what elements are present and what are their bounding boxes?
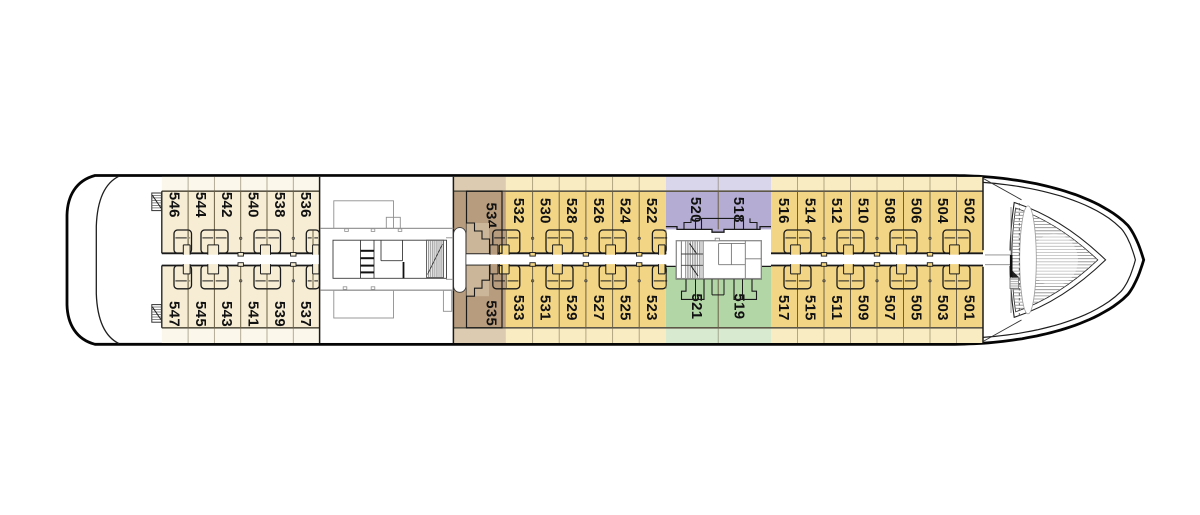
svg-text:501: 501: [960, 295, 977, 321]
svg-text:505: 505: [907, 295, 924, 321]
svg-text:519: 519: [731, 293, 748, 319]
svg-text:546: 546: [166, 192, 183, 218]
svg-text:527: 527: [590, 295, 607, 321]
svg-text:529: 529: [563, 295, 580, 321]
svg-text:511: 511: [828, 295, 845, 320]
svg-text:538: 538: [271, 192, 288, 218]
svg-text:535: 535: [482, 300, 499, 326]
svg-text:516: 516: [775, 198, 792, 224]
svg-text:502: 502: [960, 198, 977, 224]
svg-text:532: 532: [510, 198, 527, 224]
svg-text:524: 524: [617, 198, 634, 224]
svg-text:526: 526: [590, 198, 607, 224]
svg-text:508: 508: [881, 198, 898, 224]
svg-text:541: 541: [245, 301, 262, 327]
svg-text:514: 514: [801, 198, 818, 224]
svg-text:525: 525: [617, 295, 634, 321]
svg-text:530: 530: [537, 198, 554, 224]
svg-text:512: 512: [828, 198, 845, 224]
svg-text:521: 521: [688, 293, 705, 319]
svg-text:545: 545: [192, 301, 209, 327]
svg-text:536: 536: [297, 192, 314, 218]
svg-text:539: 539: [271, 301, 288, 327]
svg-text:537: 537: [297, 301, 314, 327]
svg-text:540: 540: [245, 192, 262, 218]
svg-text:504: 504: [934, 198, 951, 224]
svg-text:528: 528: [563, 198, 580, 224]
svg-text:533: 533: [510, 295, 527, 321]
svg-text:522: 522: [643, 198, 660, 224]
svg-text:517: 517: [775, 295, 792, 321]
svg-text:544: 544: [192, 192, 209, 218]
svg-text:515: 515: [801, 295, 818, 321]
svg-text:547: 547: [166, 301, 183, 327]
svg-text:507: 507: [881, 295, 898, 321]
svg-text:542: 542: [218, 192, 235, 218]
svg-text:531: 531: [537, 295, 554, 321]
svg-text:543: 543: [218, 301, 235, 327]
svg-text:510: 510: [854, 198, 871, 224]
svg-text:506: 506: [907, 198, 924, 224]
svg-text:509: 509: [854, 295, 871, 321]
svg-text:523: 523: [643, 295, 660, 321]
svg-text:503: 503: [934, 295, 951, 321]
